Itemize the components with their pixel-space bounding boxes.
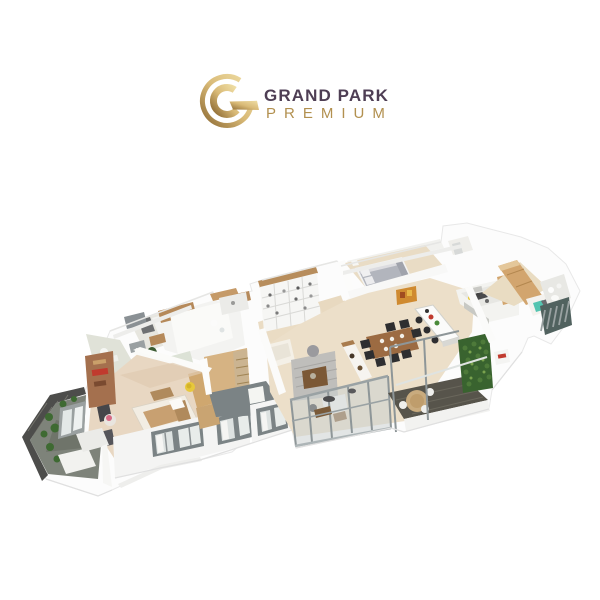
- svg-text:GRAND PARK: GRAND PARK: [264, 86, 389, 105]
- svg-text:PREMIUM: PREMIUM: [266, 105, 393, 122]
